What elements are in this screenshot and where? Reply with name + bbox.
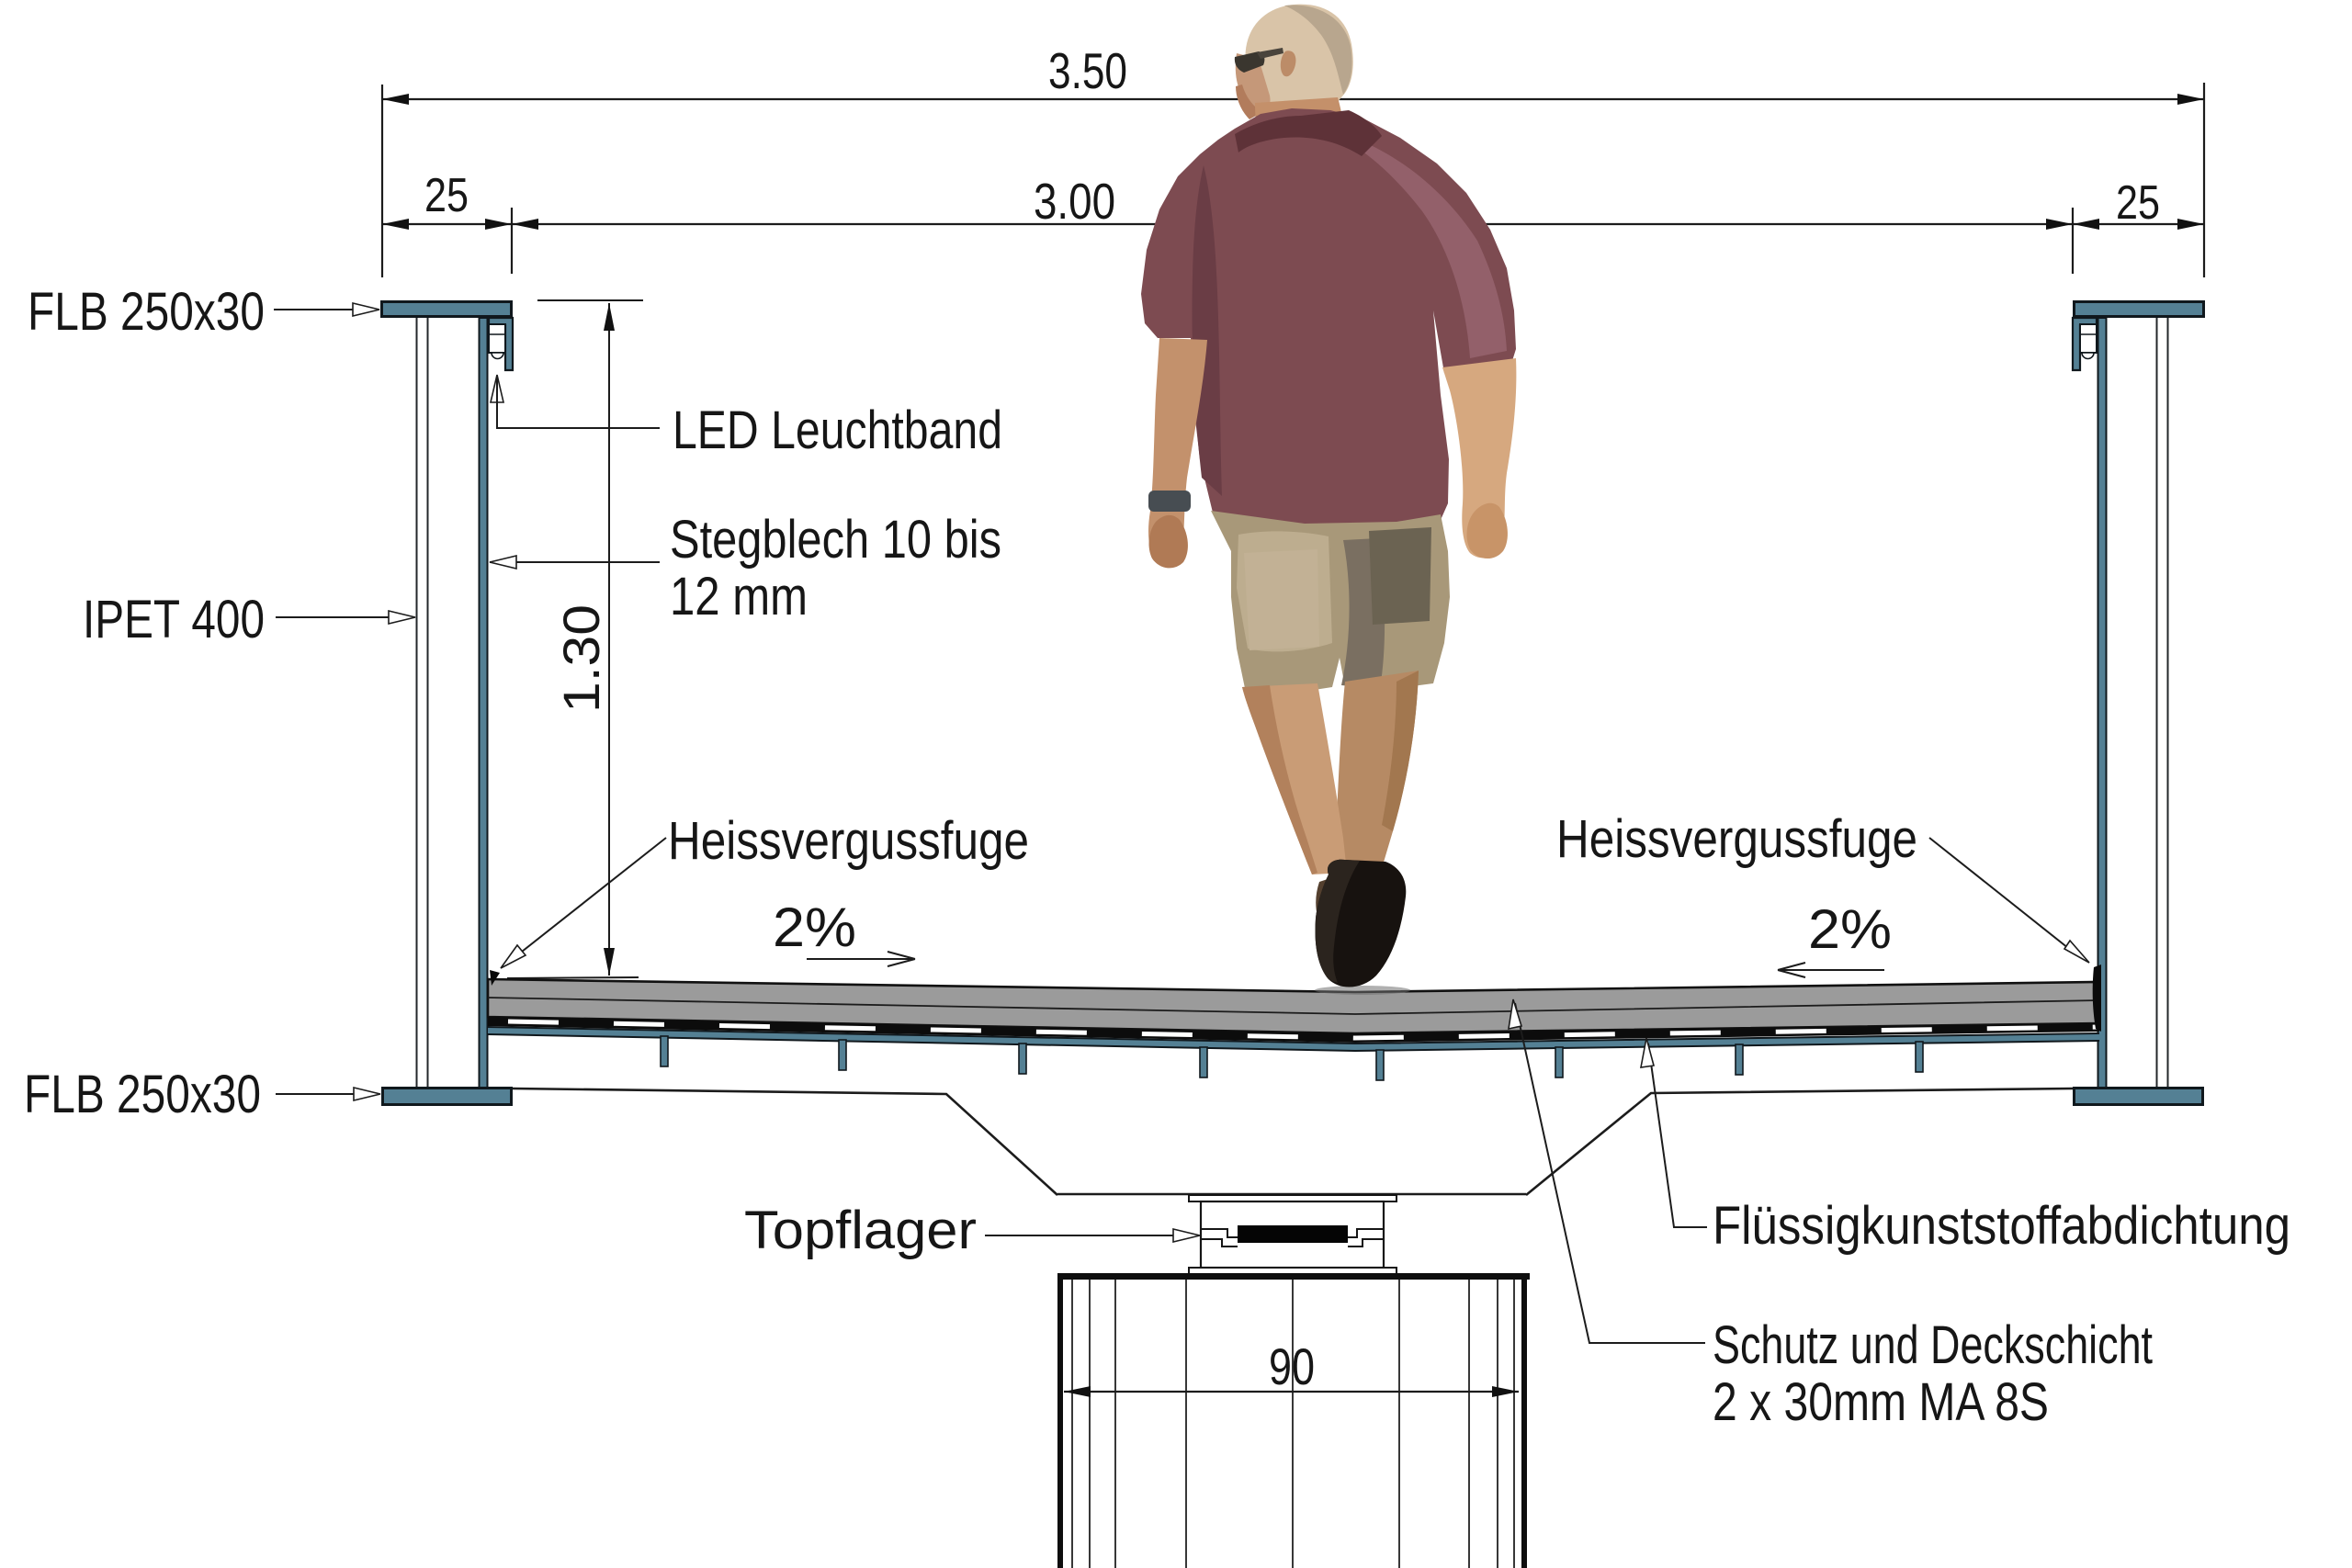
svg-text:90: 90 <box>1269 1337 1315 1395</box>
svg-text:2 x 30mm MA 8S: 2 x 30mm MA 8S <box>1713 1372 2049 1432</box>
svg-text:1.30: 1.30 <box>552 604 610 713</box>
svg-text:2%: 2% <box>1808 898 1892 960</box>
svg-text:Stegblech 10 bis: Stegblech 10 bis <box>670 510 1001 570</box>
svg-text:25: 25 <box>424 169 469 222</box>
svg-text:Topflager: Topflager <box>744 1201 977 1260</box>
svg-text:Heissvergussfuge: Heissvergussfuge <box>668 811 1029 871</box>
svg-text:Schutz und Deckschicht: Schutz und Deckschicht <box>1713 1315 2153 1375</box>
svg-text:LED Leuchtband: LED Leuchtband <box>673 400 1002 460</box>
svg-text:2%: 2% <box>773 897 856 958</box>
svg-text:IPET 400: IPET 400 <box>83 590 265 649</box>
svg-text:Flüssigkunststoffabdichtung: Flüssigkunststoffabdichtung <box>1713 1196 2290 1256</box>
svg-text:FLB 250x30: FLB 250x30 <box>24 1065 261 1124</box>
svg-text:3.00: 3.00 <box>1034 173 1115 230</box>
svg-text:25: 25 <box>2116 176 2160 230</box>
svg-text:FLB 250x30: FLB 250x30 <box>28 282 265 342</box>
svg-text:Heissvergussfuge: Heissvergussfuge <box>1556 809 1917 869</box>
svg-text:3.50: 3.50 <box>1048 42 1127 99</box>
svg-text:12 mm: 12 mm <box>670 567 808 626</box>
